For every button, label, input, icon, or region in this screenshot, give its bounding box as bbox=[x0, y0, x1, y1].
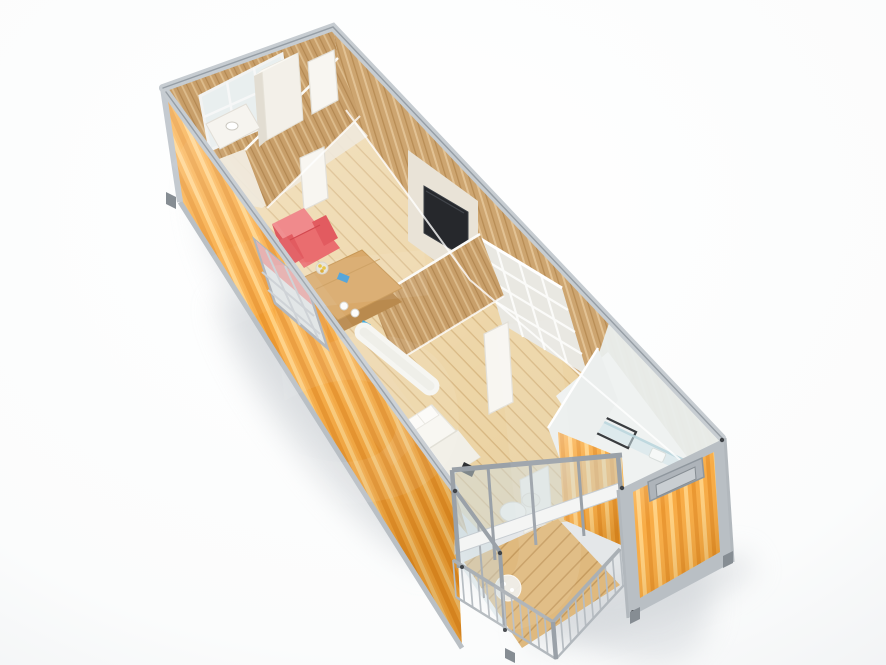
render-canvas: 5 J bbox=[0, 0, 886, 665]
container-house-render: 5 J bbox=[0, 0, 886, 665]
sink bbox=[226, 122, 238, 130]
